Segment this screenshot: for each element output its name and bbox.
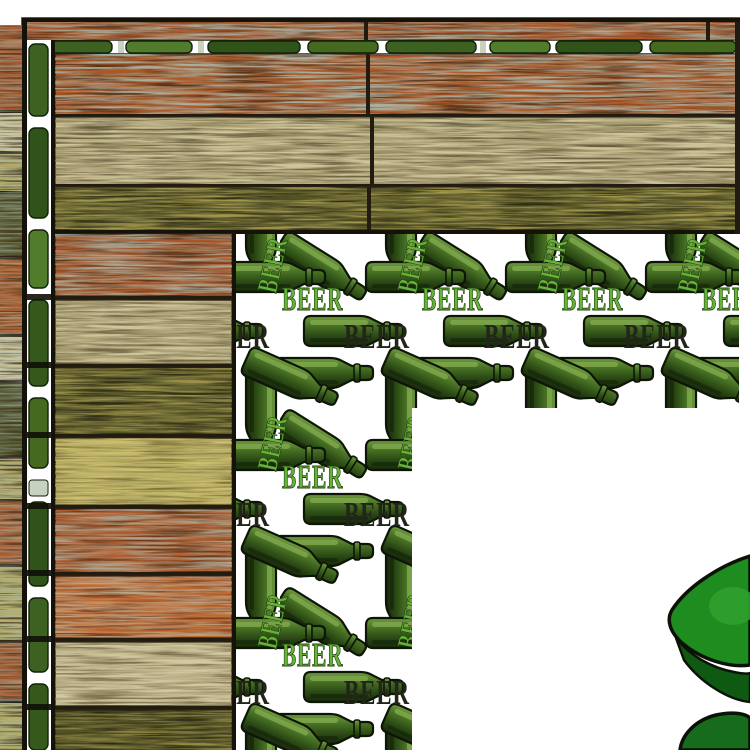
wood-plank bbox=[55, 187, 740, 230]
wood-plank bbox=[55, 438, 232, 505]
wood-plank bbox=[55, 642, 232, 706]
wood-plank bbox=[55, 368, 232, 434]
beer-party-collage-image: BEER BEER BEER BEER bbox=[0, 0, 750, 750]
plank-gap-bottles-vertical bbox=[27, 40, 55, 750]
wood-plank bbox=[55, 234, 232, 296]
scene-svg: BEER BEER BEER BEER bbox=[0, 0, 750, 750]
frame-edge-top bbox=[22, 18, 740, 22]
wood-plank bbox=[55, 117, 740, 186]
wood-plank bbox=[55, 509, 232, 572]
wood-plank bbox=[55, 710, 232, 750]
wood-plank bbox=[55, 300, 232, 364]
wood-frame-left-bar bbox=[55, 234, 236, 750]
wood-plank bbox=[55, 576, 232, 638]
wood-plank bbox=[55, 54, 740, 116]
wood-plank-sliver-column bbox=[0, 25, 22, 750]
frame-edge-left bbox=[22, 18, 27, 750]
